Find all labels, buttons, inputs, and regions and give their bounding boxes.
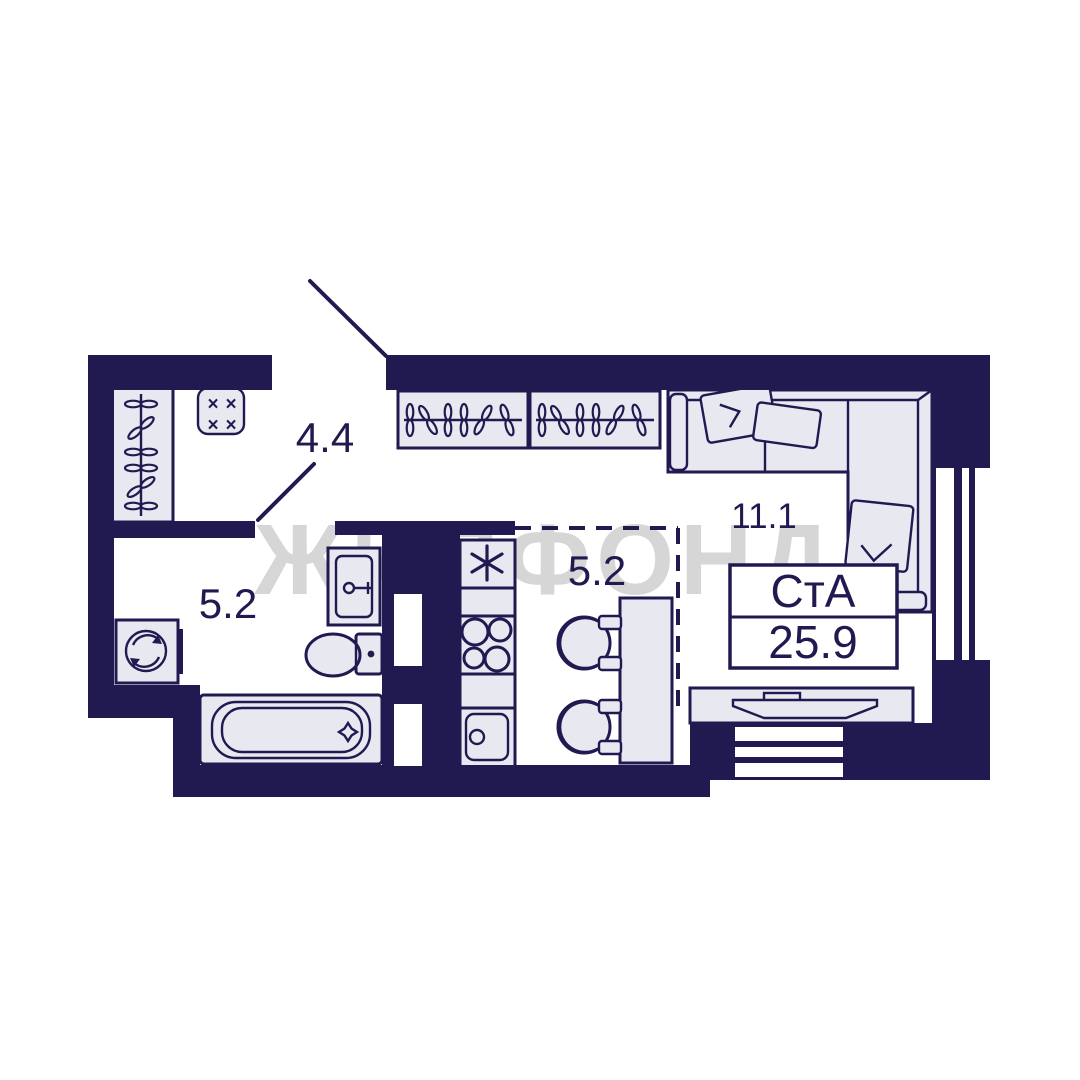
kitchen-area-label: 5.2 <box>568 547 626 594</box>
hallway-area-label: 4.4 <box>296 414 354 461</box>
sofa-pillow <box>753 402 822 449</box>
tv-stand <box>690 688 913 723</box>
unit-type-label: СтА <box>771 565 856 617</box>
tv-icon <box>733 700 877 718</box>
electrical-panel: × × × × <box>198 388 244 436</box>
floor-plan-svg: ЖИЛФОНД × × × × <box>0 0 1080 1080</box>
unit-summary-box: СтА 25.9 <box>730 565 897 668</box>
living-area-label: 11.1 <box>731 497 797 536</box>
kitchen-counter <box>460 540 515 768</box>
bottom-window <box>735 727 843 777</box>
bathtub <box>200 695 382 764</box>
panel-cross-icon: × <box>225 394 236 415</box>
panel-cross-icon: × <box>207 394 218 415</box>
chair-1 <box>558 616 621 670</box>
right-window <box>936 468 990 660</box>
floor-plan-page: ЖИЛФОНД × × × × <box>0 0 1080 1080</box>
panel-cross-icon: × <box>207 415 218 436</box>
bathroom-sink <box>328 548 380 625</box>
duct-void <box>394 594 422 666</box>
washing-machine <box>116 620 183 683</box>
entrance-door-swing-line <box>310 281 386 356</box>
chair-2 <box>558 700 621 754</box>
duct-void <box>394 704 422 766</box>
kitchen-sink <box>466 714 508 760</box>
bar-table <box>620 598 672 763</box>
panel-cross-icon: × <box>225 415 236 436</box>
closet-2 <box>530 391 660 448</box>
bathroom-area-label: 5.2 <box>199 580 257 627</box>
toilet <box>306 634 382 676</box>
hallway-wardrobe <box>112 388 173 522</box>
closet-1 <box>398 391 528 448</box>
sofa-pillow <box>845 500 914 572</box>
unit-total-area: 25.9 <box>768 616 858 668</box>
